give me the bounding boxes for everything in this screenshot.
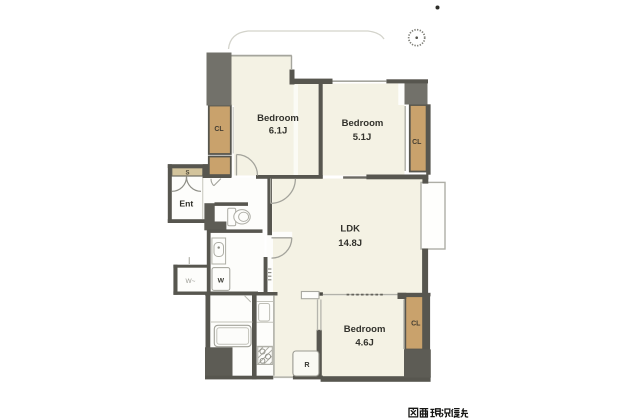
svg-text:CL: CL <box>214 126 224 133</box>
svg-text:Bedroom: Bedroom <box>342 118 384 129</box>
svg-text:W: W <box>218 278 225 285</box>
svg-text:S: S <box>185 171 189 177</box>
svg-text:W~: W~ <box>186 278 196 285</box>
svg-text:CL: CL <box>411 320 421 327</box>
svg-text:6.1J: 6.1J <box>269 126 288 137</box>
svg-text:Bedroom: Bedroom <box>344 324 386 335</box>
svg-text:CL: CL <box>412 139 422 146</box>
svg-text:5.1J: 5.1J <box>353 132 372 143</box>
svg-text:14.8J: 14.8J <box>338 238 362 249</box>
svg-text:Bedroom: Bedroom <box>257 113 299 124</box>
svg-text:Ent: Ent <box>179 198 193 208</box>
svg-text:LDK: LDK <box>340 223 360 234</box>
svg-text:4.6J: 4.6J <box>355 338 374 349</box>
svg-text:R: R <box>304 360 310 369</box>
